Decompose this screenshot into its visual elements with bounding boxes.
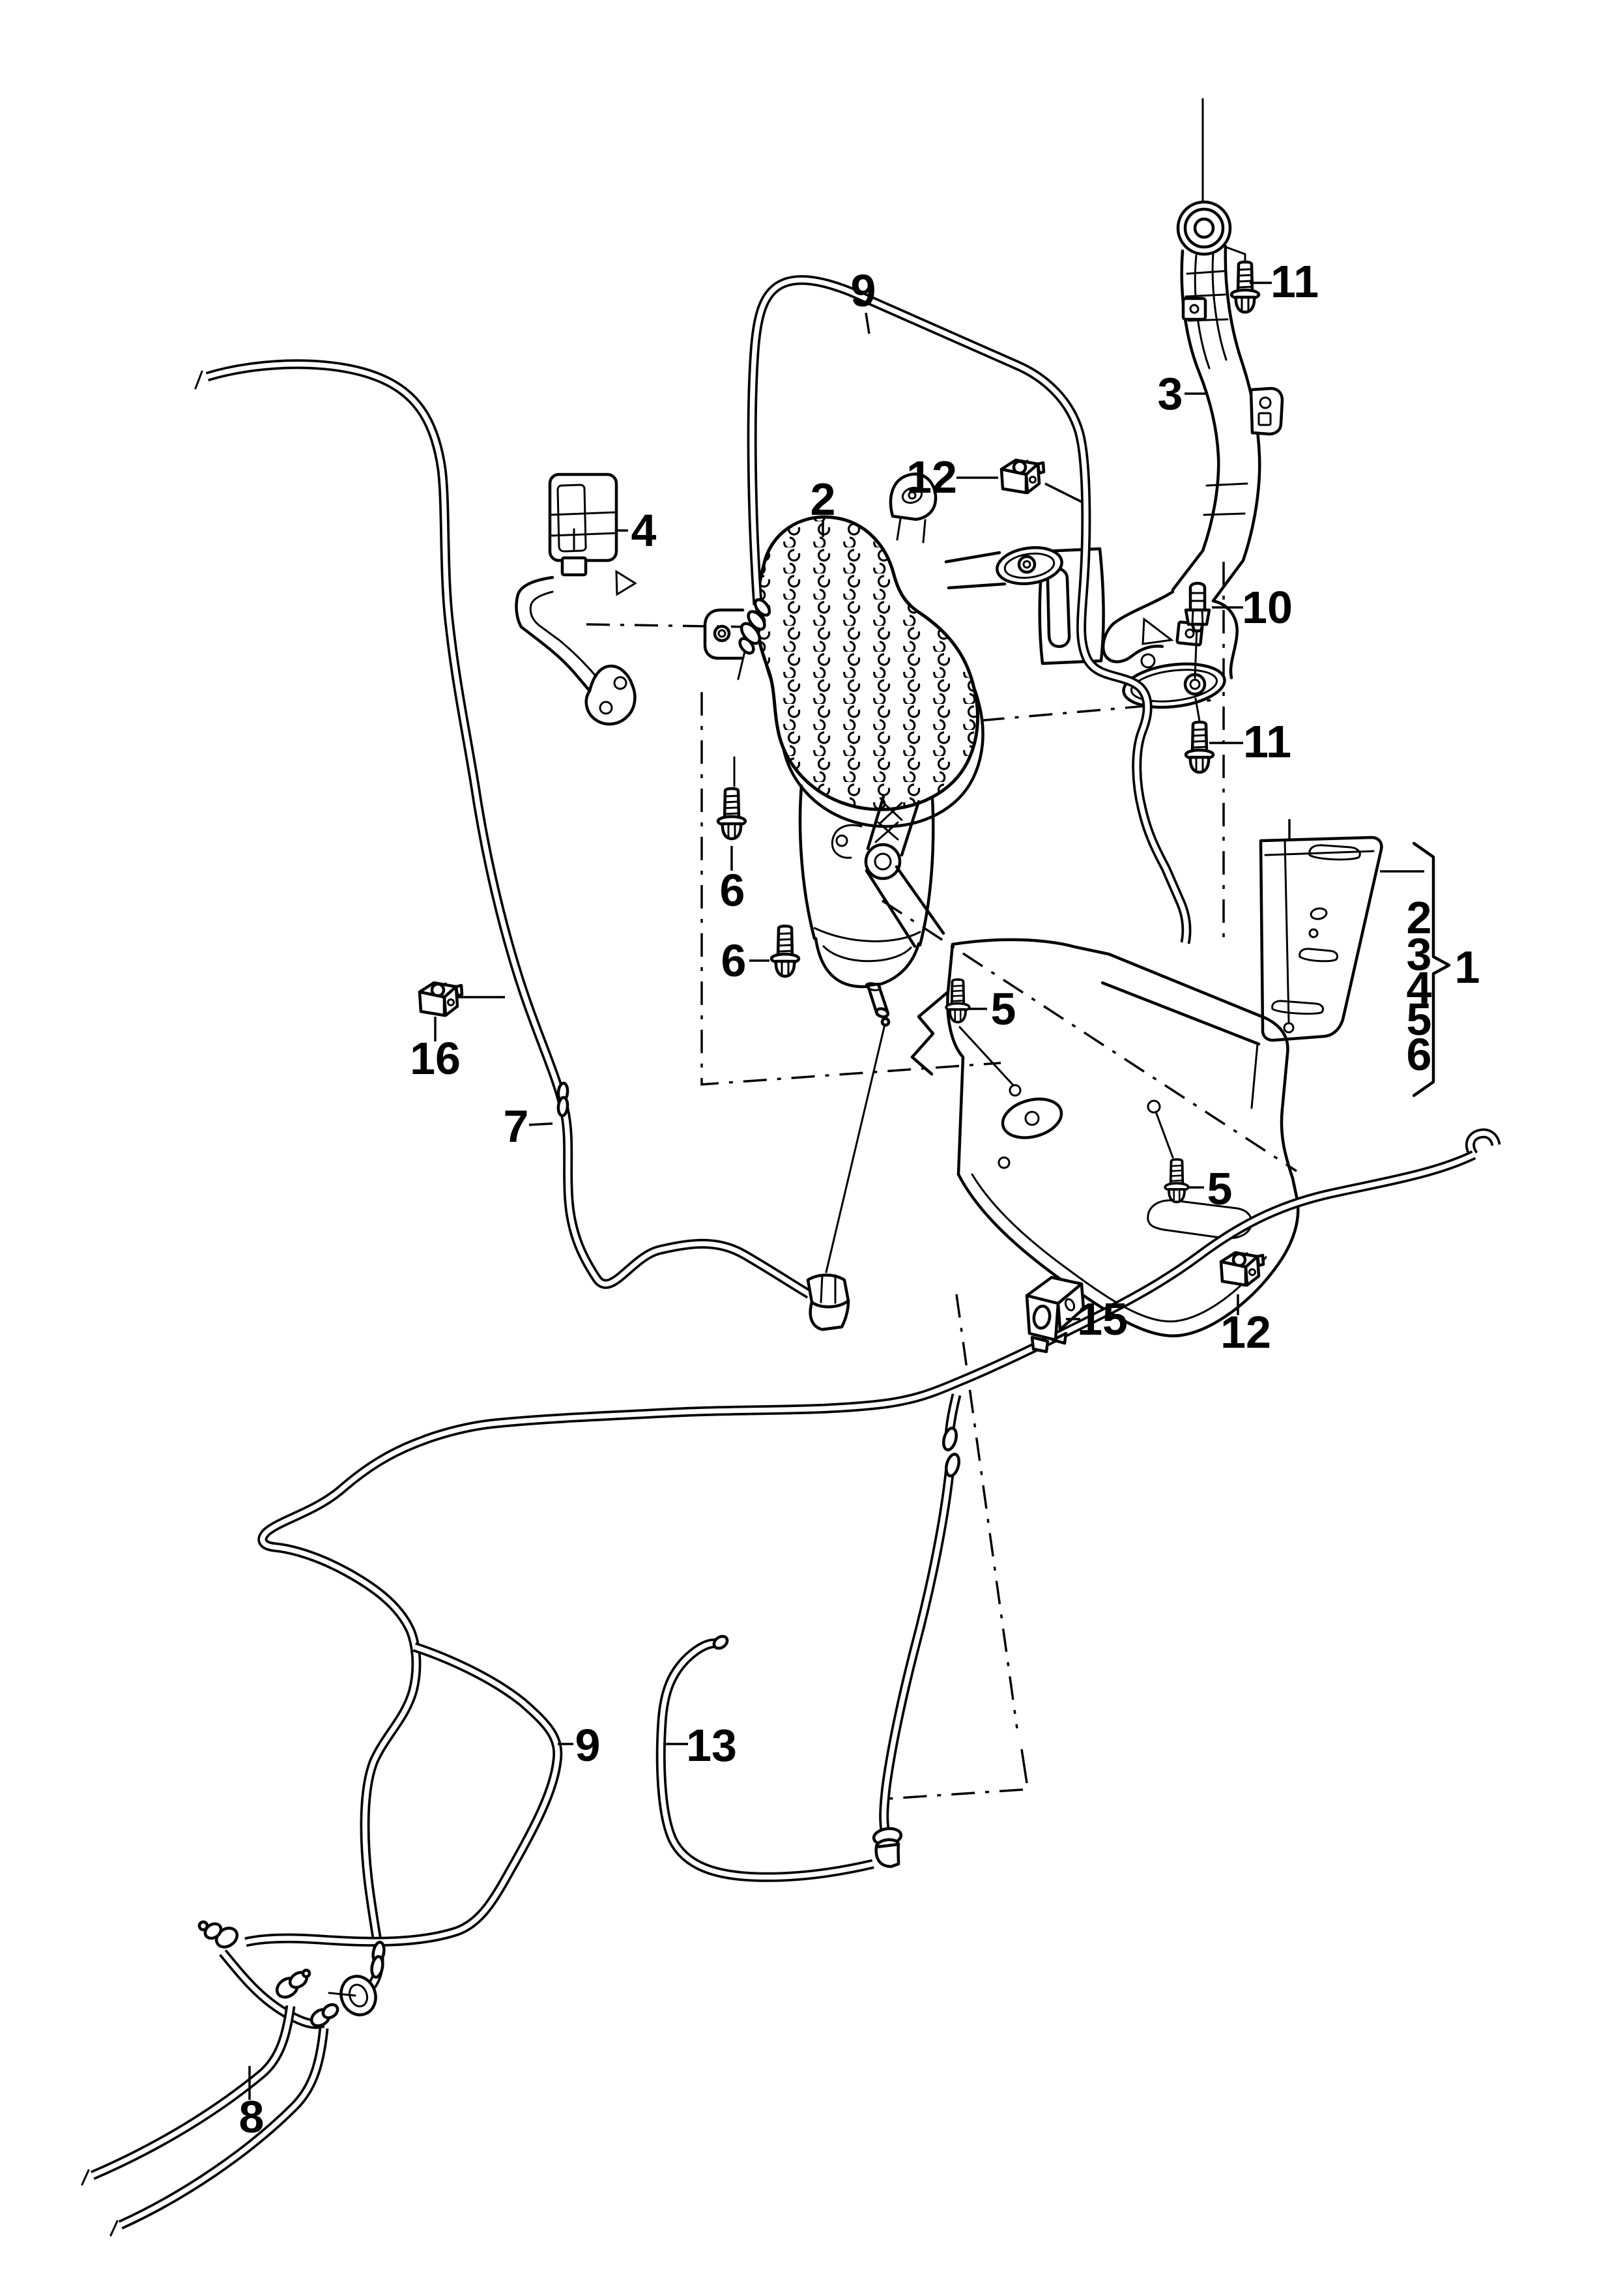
- callout-11-mid: 11: [1243, 716, 1291, 767]
- strap-clip-nut: [1183, 298, 1205, 319]
- canister-left-tab: [705, 610, 743, 658]
- jumper-hose: [223, 1953, 323, 2024]
- connector-c1: [274, 1969, 310, 2001]
- callout-15: 15: [1077, 1294, 1128, 1344]
- hose7-elbow-fitting: [808, 1275, 848, 1330]
- dash-elbow-solid-1: [1022, 1749, 1027, 1783]
- canister-body-left: [800, 786, 814, 938]
- tank-hose-pair-8: [82, 2006, 324, 2235]
- callout-12-top: 12: [906, 452, 957, 502]
- callout-5-mid: 5: [991, 983, 1016, 1034]
- callout-9-top: 9: [851, 265, 876, 316]
- callout-2: 2: [811, 474, 836, 525]
- callout-8: 8: [239, 2091, 265, 2142]
- callout-10: 10: [1242, 582, 1293, 633]
- callout-12-lower: 12: [1220, 1307, 1271, 1358]
- bracket-4: [517, 474, 635, 724]
- nipple-elbow-axis: [826, 1024, 885, 1272]
- hose13-elbow-fitting: [873, 1827, 902, 1867]
- hose13-end-nub: [711, 1634, 729, 1651]
- connector-c2: [308, 2002, 340, 2029]
- sweep-sleeves: [370, 1941, 385, 1978]
- screw-11-mid: [1186, 722, 1213, 772]
- leader-7: [529, 1124, 553, 1125]
- callout-5-lower: 5: [1207, 1163, 1233, 1214]
- callout-9-bottom: 9: [575, 1720, 601, 1771]
- leader-12-top-b: [1045, 484, 1082, 502]
- parts-diagram-canvas: 9 12 3 11 4 2 10 11 6 6 5 5 16 7 15 12 2…: [0, 0, 1623, 2296]
- fuel-hose-9-bottom: [246, 1647, 558, 1942]
- callout-4: 4: [631, 505, 657, 556]
- callout-13: 13: [686, 1720, 737, 1771]
- fuel-hose-7: [195, 364, 809, 1294]
- fittings: [199, 597, 961, 2029]
- fuel-hose-13: [661, 1395, 956, 1877]
- screw-11-top: [1231, 262, 1259, 312]
- canister-nipple: [865, 982, 889, 1025]
- hose-clip-16: [420, 983, 462, 1015]
- screw-5-lower: [1165, 1159, 1188, 1202]
- hose7-mid-sleeves: [558, 1083, 568, 1116]
- screw-6-lower: [771, 926, 799, 976]
- callout-7: 7: [504, 1101, 529, 1152]
- hose-clip-12-top: [1001, 460, 1044, 493]
- callout-1: 1: [1455, 942, 1480, 993]
- callout-11-top: 11: [1271, 256, 1319, 307]
- hose-bracket-clip-15: [1027, 1277, 1084, 1352]
- heat-shield-plate: [1261, 837, 1381, 1040]
- leader-lines: [250, 283, 1272, 2100]
- strap-side-flange: [1251, 388, 1282, 434]
- callout-6-lower: 6: [721, 935, 747, 986]
- callout-6-upper: 6: [720, 865, 745, 916]
- canister-body-right: [920, 787, 933, 945]
- dash-elbow-link-lower: [887, 1790, 1023, 1799]
- screw-6-upper: [718, 789, 745, 839]
- callout-3: 3: [1158, 368, 1183, 419]
- bracket-oval-pad: [998, 1093, 1065, 1144]
- y-junction-sleeves: [941, 1427, 961, 1477]
- hose-clip-12-lower: [1221, 1253, 1263, 1285]
- end-fitting-f1: [199, 1921, 240, 1951]
- callout-group-6: 6: [1407, 1029, 1432, 1080]
- callout-16: 16: [410, 1033, 461, 1084]
